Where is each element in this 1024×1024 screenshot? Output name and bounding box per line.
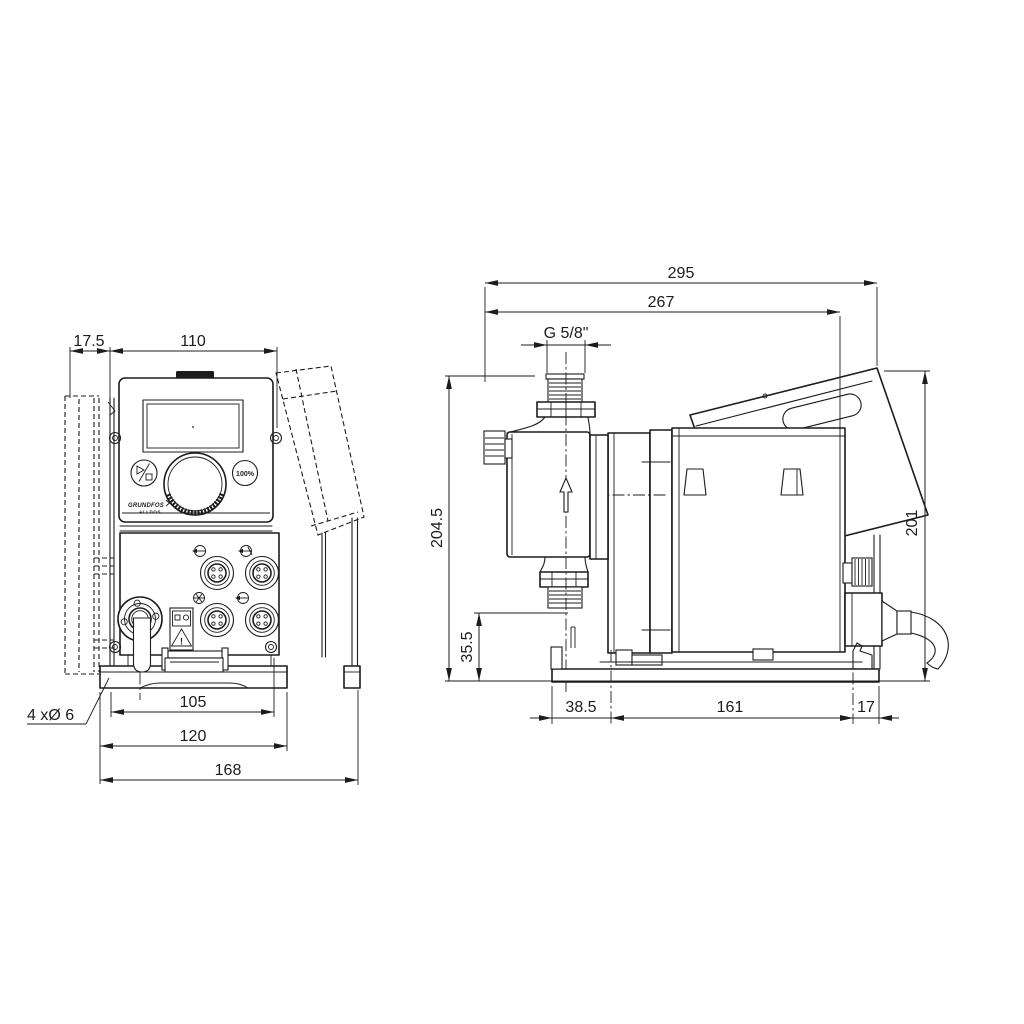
- dim-label-body-length: 267: [648, 294, 675, 311]
- control-panel: 100% GRUNDFOS ALLDOS: [110, 371, 282, 531]
- dim-label-base-width: 120: [180, 728, 207, 745]
- holes-callout-label: 4 xØ 6: [27, 707, 74, 724]
- dosing-head-side: [484, 352, 608, 692]
- pump-body-side: [592, 428, 845, 665]
- discharge-connection: [507, 374, 595, 433]
- dim-thread: G 5/8": [521, 325, 611, 373]
- front-view: !: [27, 333, 364, 785]
- cable-gland: [845, 593, 911, 646]
- housing-side-edges: [108, 398, 115, 676]
- dim-label-head-height: 204.5: [429, 508, 446, 548]
- dim-label-connection-thread: G 5/8": [544, 325, 589, 342]
- power-cable: [911, 612, 948, 669]
- rear-connections: [843, 558, 948, 669]
- suction-connection: [540, 557, 588, 608]
- control-cube-hidden-front: [276, 366, 364, 535]
- dim-label-overall-length: 295: [668, 265, 695, 282]
- warning-exclamation: !: [180, 637, 183, 647]
- mounting-clamp: [162, 648, 228, 672]
- dim-label-rear-offset: 17: [857, 699, 875, 716]
- brand-logo-text: GRUNDFOS: [128, 503, 164, 509]
- lower-housing: !: [110, 533, 280, 672]
- dim-17: 17: [835, 686, 899, 724]
- dim-label-plate-offset: 17.5: [73, 333, 104, 350]
- wall-plate-hidden-front: [65, 396, 114, 674]
- dim-label-mount-pitch: 161: [717, 699, 744, 716]
- side-view: 295 267 G 5/8" 204.5: [429, 265, 948, 724]
- dim-label-overall-height: 201: [904, 510, 921, 537]
- dim-17-5: 17.5: [70, 333, 110, 398]
- holes-callout: 4 xØ 6: [27, 678, 109, 724]
- warning-label: !: [170, 608, 193, 650]
- dim-295: 295: [485, 265, 877, 382]
- rear-plug: [843, 558, 872, 586]
- dim-label-hole-pitch: 105: [180, 694, 207, 711]
- dim-38-5: 38.5: [530, 650, 611, 724]
- drain-tube: [134, 618, 151, 672]
- pump-head-flange-front: [118, 597, 162, 672]
- dim-label-foot-height: 35.5: [459, 631, 476, 662]
- dim-label-housing-width: 110: [180, 333, 206, 350]
- hundred-percent-label: 100%: [236, 471, 255, 478]
- wall-plate-edges-front: [322, 518, 360, 688]
- cube-handle-recess: [781, 392, 864, 433]
- technical-drawing: !: [0, 0, 1024, 1024]
- dim-label-front-offset: 38.5: [565, 699, 596, 716]
- plate-foot-side: [853, 643, 872, 669]
- brand-logo-subtext: ALLDOS: [139, 510, 161, 515]
- plate-foot-front: [344, 666, 360, 688]
- dimensional-drawing-page: !: [0, 0, 1024, 1024]
- housing-screw: [110, 642, 121, 653]
- dim-168: 168: [100, 690, 358, 785]
- dim-label-overall-width: 168: [215, 762, 242, 779]
